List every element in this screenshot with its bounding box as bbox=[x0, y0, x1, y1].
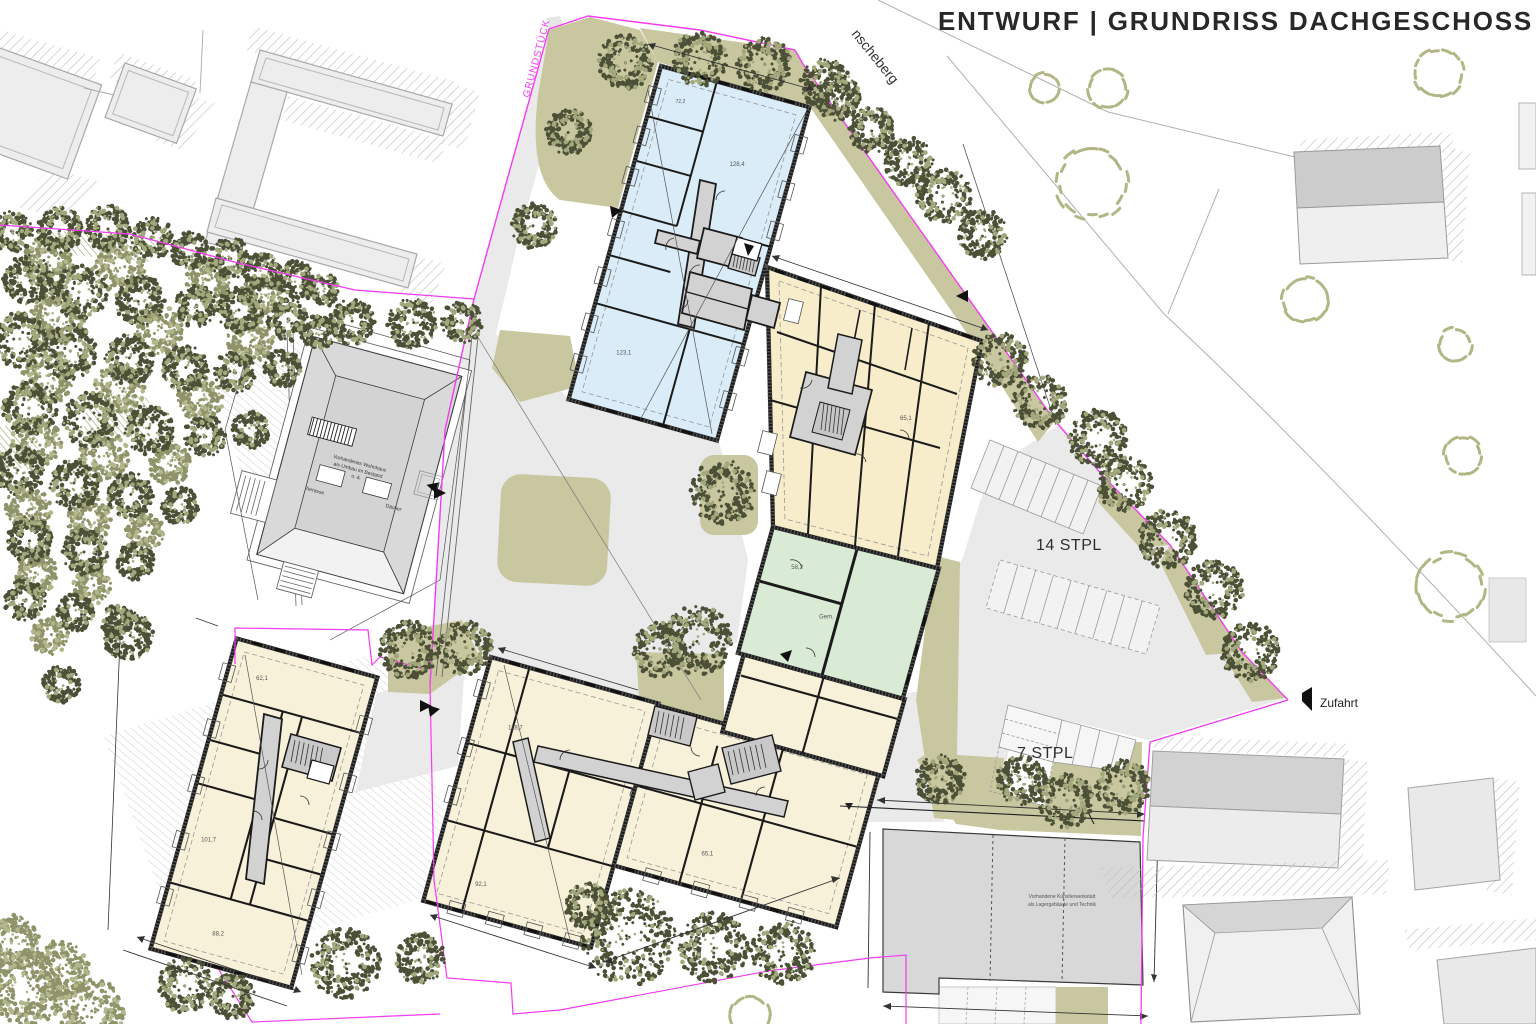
svg-text:72,2: 72,2 bbox=[676, 99, 686, 105]
svg-text:118,7: 118,7 bbox=[508, 725, 523, 731]
svg-text:65,1: 65,1 bbox=[701, 852, 713, 858]
svg-text:123,1: 123,1 bbox=[616, 351, 632, 357]
svg-text:88,2: 88,2 bbox=[212, 932, 224, 938]
svg-text:128,4: 128,4 bbox=[730, 162, 746, 168]
svg-text:14 STPL: 14 STPL bbox=[1036, 537, 1102, 554]
svg-text:Gem.: Gem. bbox=[819, 614, 834, 620]
svg-text:62,1: 62,1 bbox=[256, 676, 268, 682]
svg-text:Vorhandene Künstlerwerkstatt: Vorhandene Künstlerwerkstatt bbox=[1029, 894, 1096, 900]
svg-text:92,1: 92,1 bbox=[475, 882, 487, 888]
svg-text:101,7: 101,7 bbox=[201, 837, 217, 843]
svg-text:7 STPL: 7 STPL bbox=[1017, 745, 1073, 762]
svg-text:ENTWURF | GRUNDRISS DACHGESCHO: ENTWURF | GRUNDRISS DACHGESCHOSS bbox=[938, 6, 1533, 36]
svg-text:Zufahrt: Zufahrt bbox=[1320, 696, 1359, 710]
svg-text:als Lagergebäude und Technik: als Lagergebäude und Technik bbox=[1028, 902, 1097, 908]
svg-text:65,1: 65,1 bbox=[900, 416, 912, 422]
svg-text:nscheberg: nscheberg bbox=[849, 26, 903, 87]
